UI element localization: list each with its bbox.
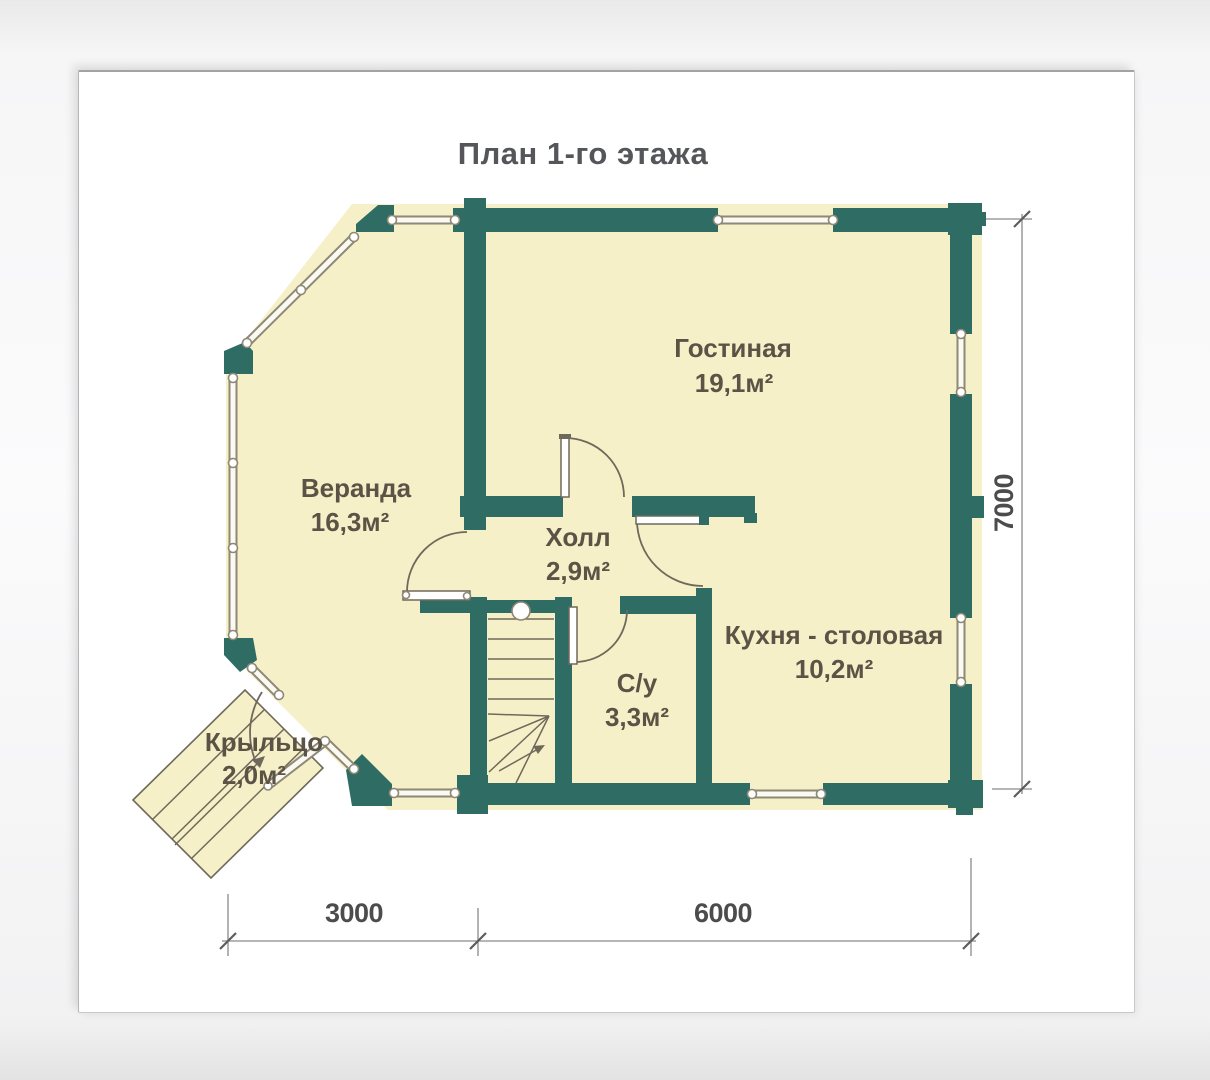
log-joint bbox=[714, 216, 723, 225]
wall-segment bbox=[950, 230, 972, 334]
log-joint bbox=[243, 339, 252, 348]
wall-segment bbox=[950, 394, 972, 618]
log-joint bbox=[350, 765, 359, 774]
log-joint bbox=[390, 789, 399, 798]
log-joint bbox=[957, 388, 966, 397]
door-joint bbox=[403, 592, 410, 599]
wall-segment bbox=[470, 597, 487, 787]
room-area-krylco: 2,0м² bbox=[222, 760, 286, 790]
log-joint bbox=[229, 374, 238, 383]
door-stop bbox=[744, 513, 757, 523]
door-leaf bbox=[561, 438, 569, 497]
room-label-veranda: Веранда bbox=[301, 473, 412, 503]
log-joint bbox=[229, 459, 238, 468]
room-label-su: С/у bbox=[617, 668, 658, 698]
dimension-value-3000: 3000 bbox=[325, 898, 383, 928]
room-area-kuhnya: 10,2м² bbox=[795, 654, 874, 684]
wall-segment bbox=[460, 496, 563, 517]
door-hinge-block bbox=[699, 511, 709, 525]
log-joint bbox=[350, 233, 359, 242]
door-leaf bbox=[569, 607, 577, 664]
corner-post bbox=[976, 212, 986, 226]
stair-post bbox=[512, 602, 530, 620]
wall-segment bbox=[833, 208, 952, 232]
room-area-su: 3,3м² bbox=[605, 702, 669, 732]
wall-segment bbox=[950, 684, 972, 786]
log-joint bbox=[451, 789, 460, 798]
wall-segment bbox=[464, 198, 486, 530]
wall-segment bbox=[457, 783, 750, 805]
room-label-holl: Холл bbox=[545, 522, 610, 552]
log-joint bbox=[248, 664, 257, 673]
log-joint bbox=[297, 286, 306, 295]
room-area-veranda: 16,3м² bbox=[311, 507, 390, 537]
room-area-holl: 2,9м² bbox=[546, 556, 610, 586]
wall-segment bbox=[696, 588, 712, 786]
dimension-value-7000: 7000 bbox=[989, 474, 1019, 532]
wall-pilaster bbox=[970, 496, 984, 518]
wall-segment bbox=[453, 208, 718, 232]
floor-plan-drawing: Гостиная 19,1м² Веранда 16,3м² Холл 2,9м… bbox=[0, 0, 1210, 1080]
log-joint bbox=[275, 691, 284, 700]
door-leaf bbox=[403, 591, 470, 600]
corner-post bbox=[956, 806, 973, 815]
door-cap bbox=[559, 434, 571, 439]
corner-post bbox=[948, 780, 983, 808]
log-joint bbox=[388, 216, 397, 225]
log-joint bbox=[748, 790, 757, 799]
log-joint bbox=[829, 216, 838, 225]
room-label-krylco: Крыльцо bbox=[205, 727, 323, 757]
room-label-kuhnya: Кухня - столовая bbox=[725, 620, 944, 650]
door-joint bbox=[464, 593, 471, 600]
door-leaf bbox=[636, 516, 704, 524]
log-joint bbox=[817, 790, 826, 799]
room-area-gostinaya: 19,1м² bbox=[695, 368, 774, 398]
log-joint bbox=[451, 216, 460, 225]
dimension-value-6000: 6000 bbox=[694, 898, 752, 928]
wall-segment bbox=[632, 496, 755, 517]
log-joint bbox=[957, 678, 966, 687]
wall-segment bbox=[420, 600, 572, 613]
log-joint bbox=[229, 631, 238, 640]
wall-segment bbox=[823, 783, 950, 805]
room-label-gostinaya: Гостиная bbox=[674, 333, 792, 363]
log-joint bbox=[229, 544, 238, 553]
log-joint bbox=[957, 330, 966, 339]
log-joint bbox=[957, 614, 966, 623]
